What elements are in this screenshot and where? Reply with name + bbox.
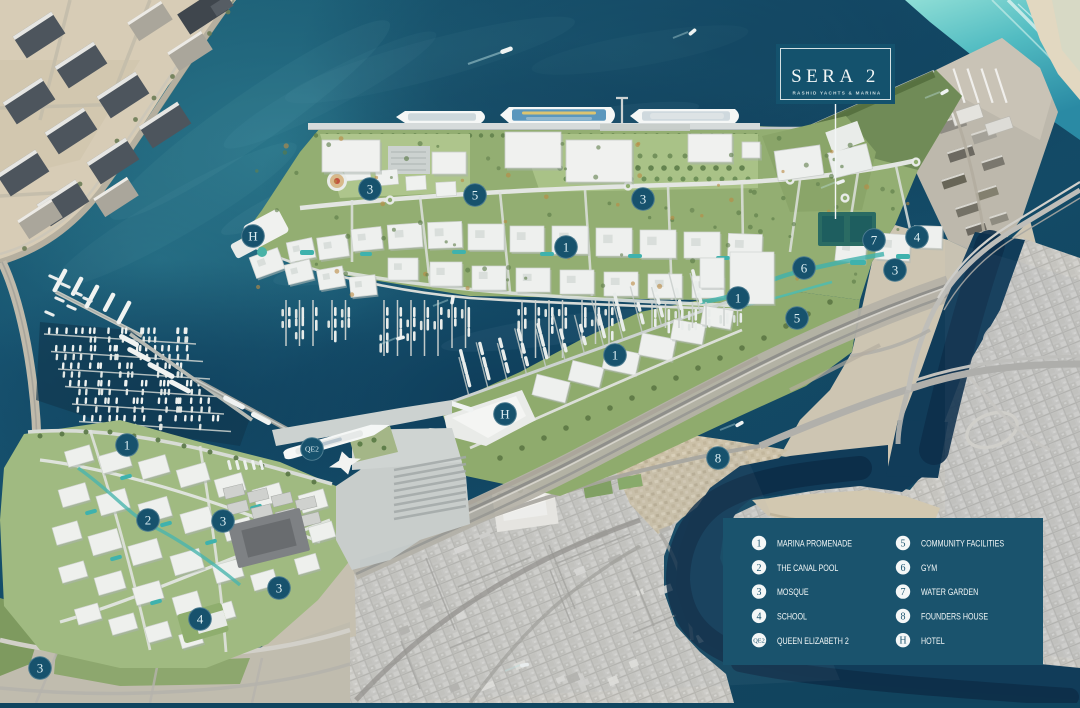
svg-text:3: 3	[37, 660, 44, 675]
svg-text:5: 5	[901, 539, 906, 550]
svg-text:1: 1	[735, 290, 742, 305]
svg-text:8: 8	[901, 611, 906, 622]
svg-text:RASHID YACHTS & MARINA: RASHID YACHTS & MARINA	[792, 91, 881, 96]
svg-text:1: 1	[612, 347, 619, 362]
svg-text:QE2: QE2	[305, 445, 319, 454]
svg-text:COMMUNITY FACILITIES: COMMUNITY FACILITIES	[921, 538, 1004, 549]
svg-text:HOTEL: HOTEL	[921, 635, 945, 646]
svg-text:4: 4	[197, 611, 204, 626]
svg-text:4: 4	[914, 229, 921, 244]
svg-text:6: 6	[801, 260, 808, 275]
svg-text:5: 5	[472, 187, 479, 202]
svg-text:H: H	[899, 636, 906, 647]
svg-text:2: 2	[145, 512, 152, 527]
svg-text:GYM: GYM	[921, 562, 937, 573]
svg-text:WATER GARDEN: WATER GARDEN	[921, 586, 978, 597]
svg-text:FOUNDERS HOUSE: FOUNDERS HOUSE	[921, 611, 988, 622]
svg-text:3: 3	[220, 513, 227, 528]
svg-text:THE CANAL POOL: THE CANAL POOL	[777, 562, 838, 573]
svg-text:SERA 2: SERA 2	[791, 66, 880, 87]
svg-text:3: 3	[367, 181, 374, 196]
svg-text:3: 3	[892, 262, 899, 277]
svg-text:H: H	[248, 228, 257, 243]
svg-text:H: H	[500, 406, 509, 421]
svg-text:8: 8	[715, 450, 722, 465]
svg-text:3: 3	[276, 580, 283, 595]
svg-text:1: 1	[563, 239, 570, 254]
svg-text:2: 2	[757, 563, 762, 574]
svg-text:3: 3	[757, 587, 762, 598]
svg-text:QE2: QE2	[753, 637, 765, 644]
svg-text:4: 4	[757, 611, 762, 622]
svg-text:MARINA PROMENADE: MARINA PROMENADE	[777, 538, 852, 549]
svg-text:MOSQUE: MOSQUE	[777, 586, 809, 597]
svg-text:7: 7	[871, 232, 878, 247]
svg-text:6: 6	[901, 563, 906, 574]
svg-text:5: 5	[794, 310, 801, 325]
svg-text:1: 1	[757, 539, 762, 550]
svg-text:SCHOOL: SCHOOL	[777, 611, 807, 622]
svg-text:7: 7	[901, 587, 906, 598]
svg-text:1: 1	[124, 437, 131, 452]
svg-text:QUEEN ELIZABETH 2: QUEEN ELIZABETH 2	[777, 635, 849, 646]
svg-text:3: 3	[640, 191, 647, 206]
